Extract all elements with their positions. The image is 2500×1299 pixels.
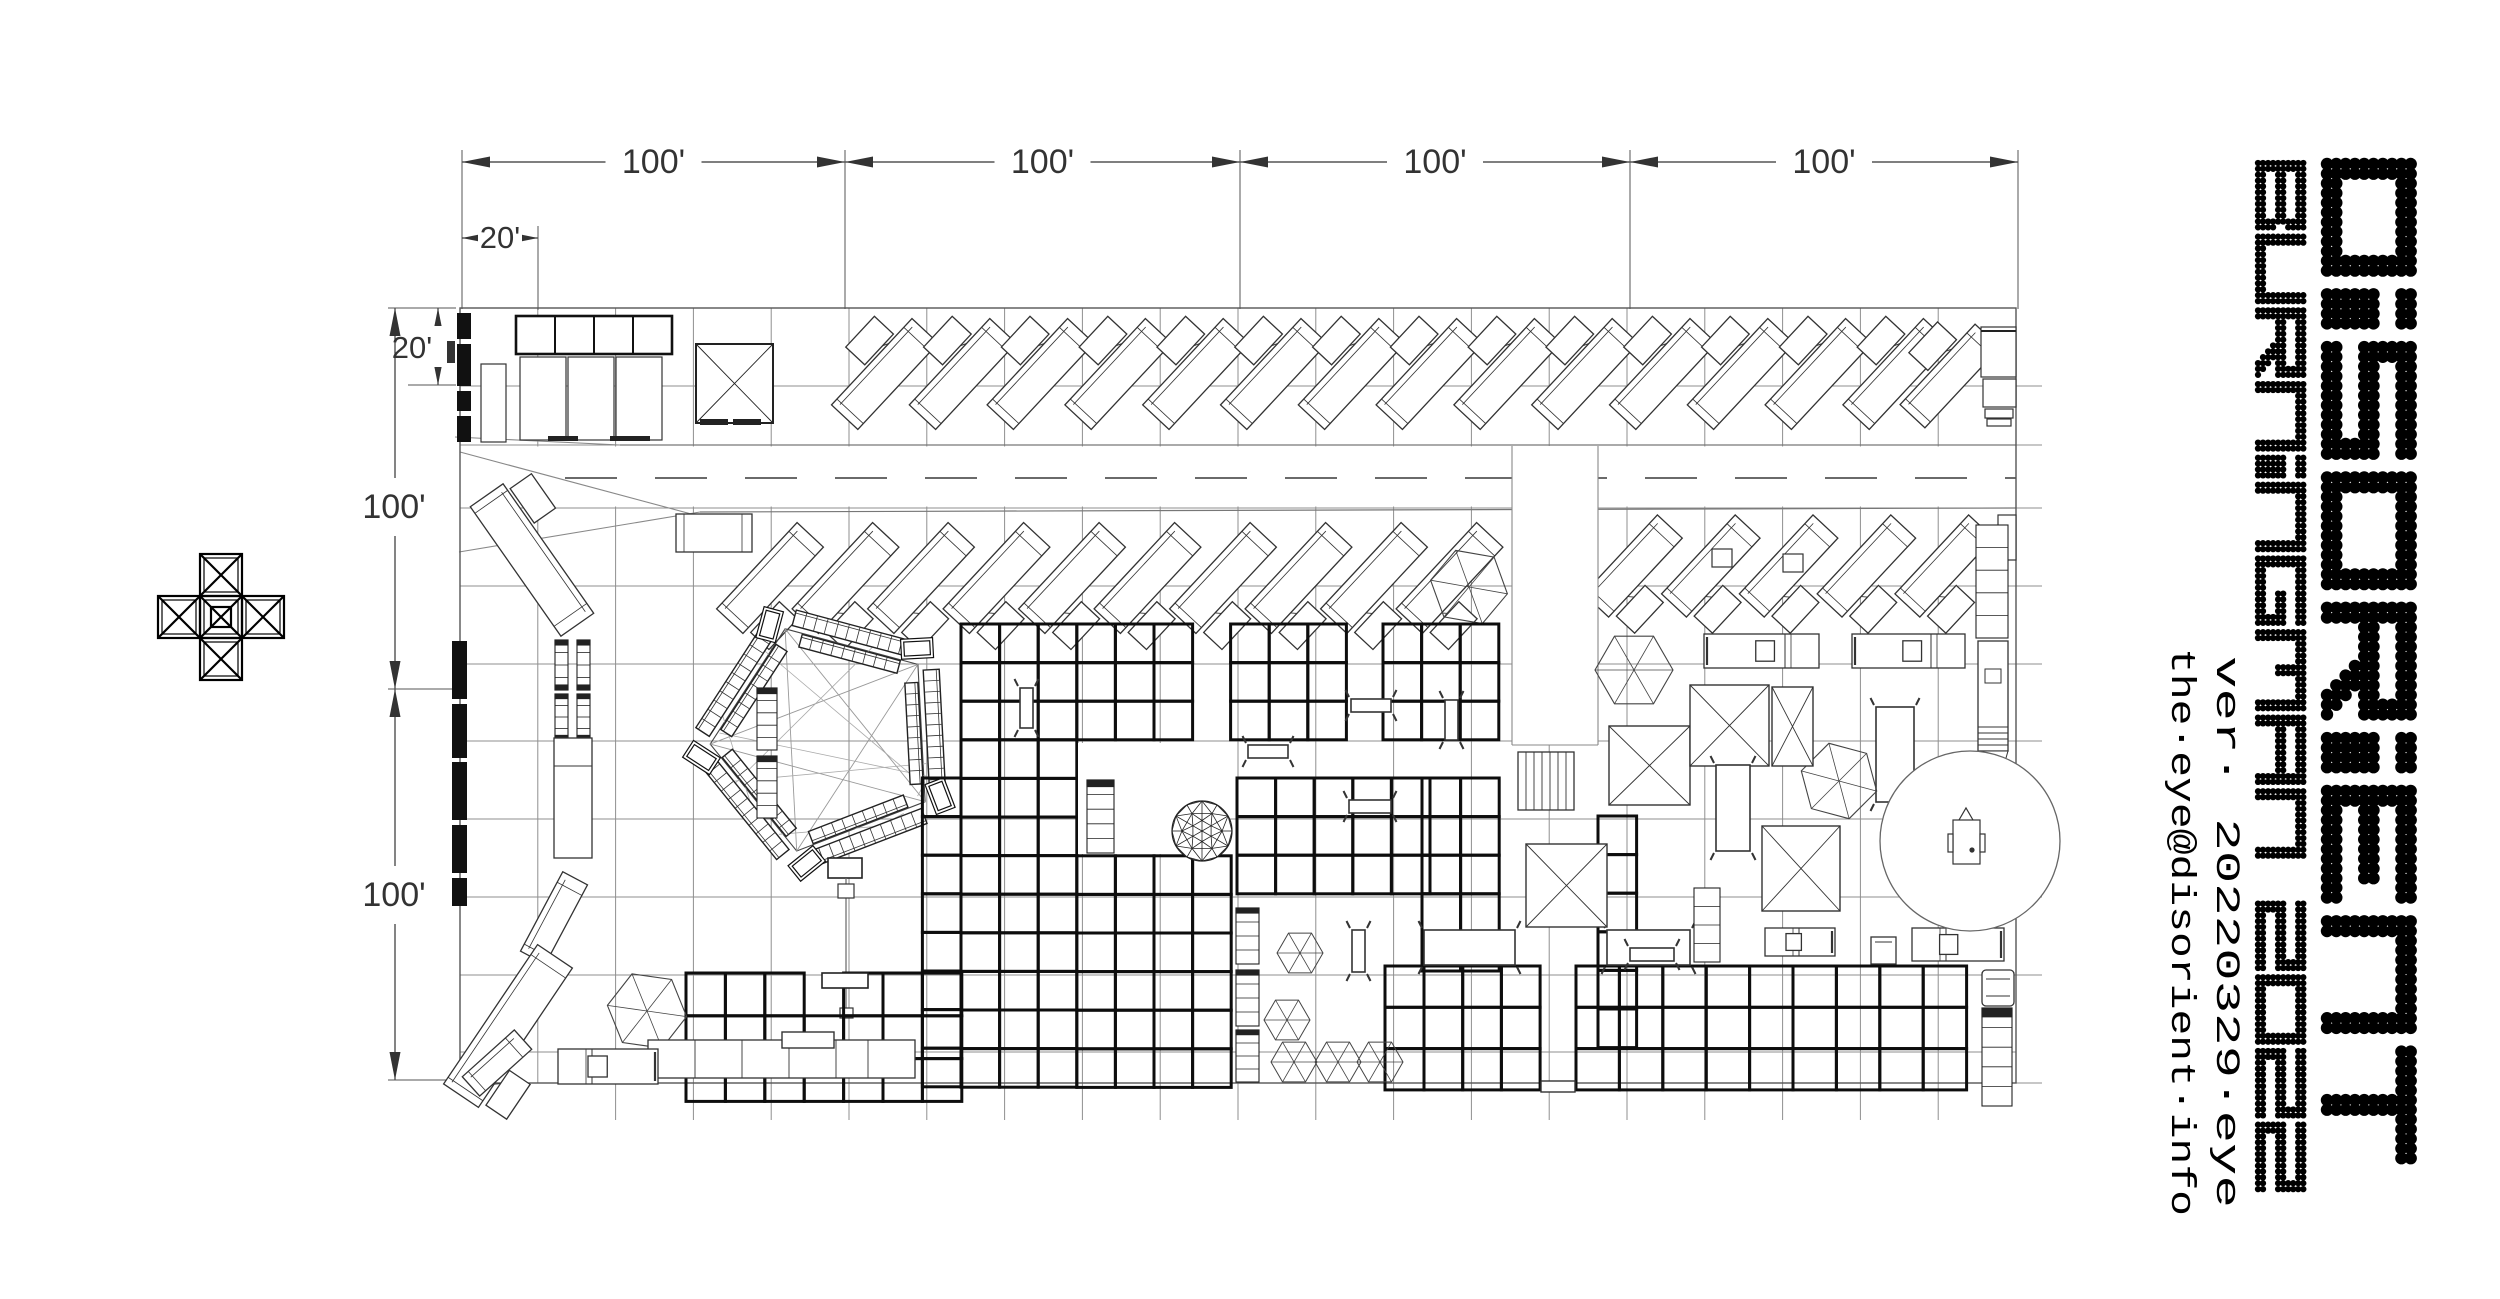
svg-text:100': 100' (1403, 143, 1466, 181)
svg-text:100': 100' (622, 143, 685, 181)
svg-text:100': 100' (362, 876, 425, 914)
svg-text:20': 20' (480, 220, 520, 255)
svg-text:the·eye@disorient·info: the·eye@disorient·info (2161, 648, 2199, 1216)
svg-text:100': 100' (362, 488, 425, 526)
svg-text:ver· 20220329·eye: ver· 20220329·eye (2206, 656, 2244, 1208)
svg-text:100': 100' (1792, 143, 1855, 181)
svg-text:100': 100' (1011, 143, 1074, 181)
